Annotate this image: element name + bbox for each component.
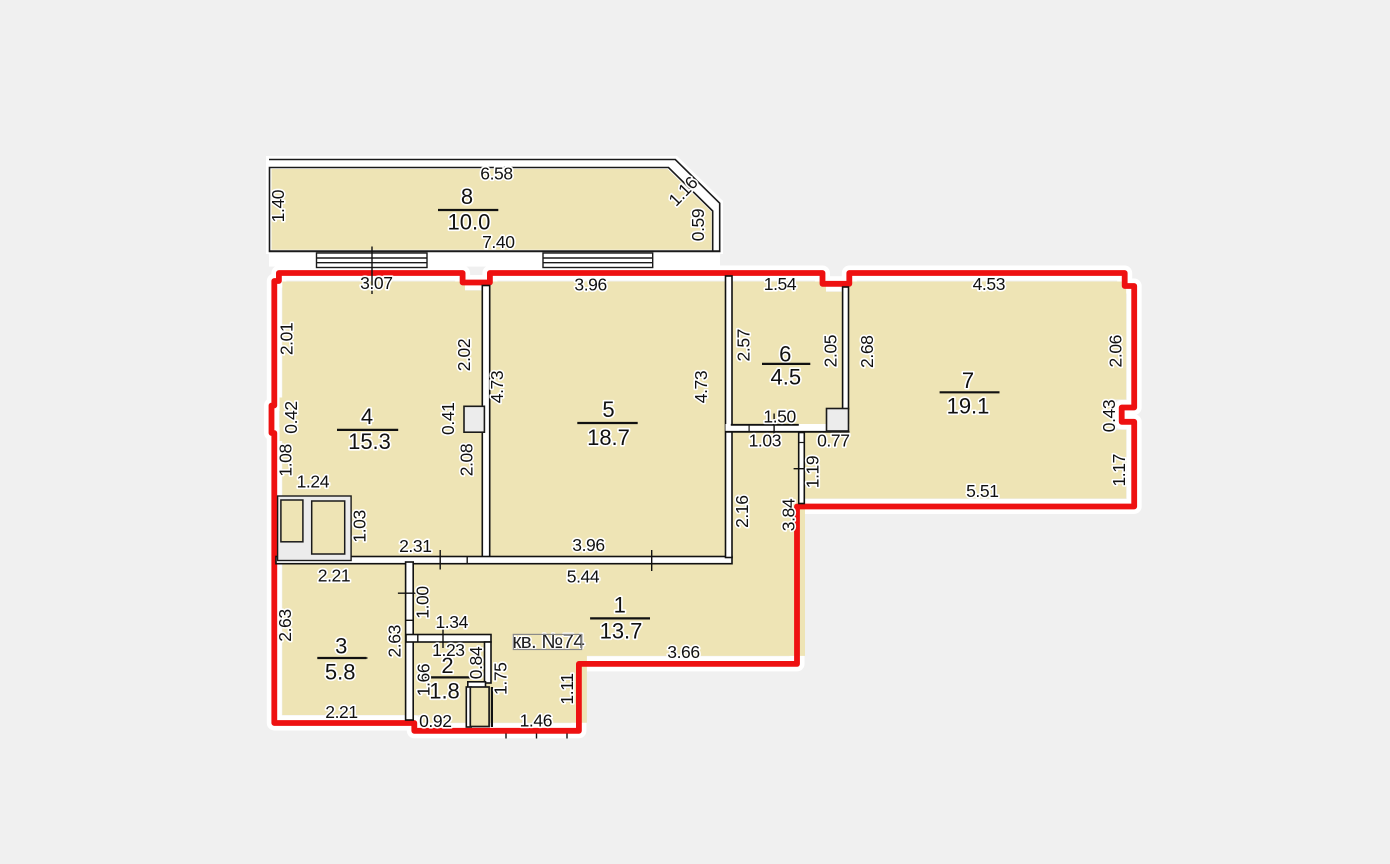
svg-text:5.44: 5.44 xyxy=(567,566,600,586)
svg-text:1.11: 1.11 xyxy=(557,673,577,704)
svg-text:1.19: 1.19 xyxy=(803,456,823,488)
svg-text:1.24: 1.24 xyxy=(297,472,330,492)
svg-text:1.40: 1.40 xyxy=(268,189,288,222)
svg-text:2.57: 2.57 xyxy=(734,329,754,361)
svg-text:4.5: 4.5 xyxy=(771,364,802,389)
svg-text:1.66: 1.66 xyxy=(414,664,434,696)
svg-text:2.63: 2.63 xyxy=(385,625,405,657)
svg-text:2.05: 2.05 xyxy=(821,335,841,367)
svg-text:2.06: 2.06 xyxy=(1106,335,1126,367)
svg-text:0.41: 0.41 xyxy=(438,402,458,434)
svg-text:0.84: 0.84 xyxy=(466,646,486,679)
svg-text:18.7: 18.7 xyxy=(587,425,630,450)
svg-text:1: 1 xyxy=(614,592,626,617)
svg-text:1.23: 1.23 xyxy=(432,640,464,660)
svg-text:0.92: 0.92 xyxy=(419,711,451,731)
svg-text:4: 4 xyxy=(361,404,373,429)
svg-text:2.08: 2.08 xyxy=(457,444,477,476)
svg-text:6.58: 6.58 xyxy=(480,164,512,184)
svg-text:1.50: 1.50 xyxy=(763,407,796,427)
svg-text:0.59: 0.59 xyxy=(688,209,708,241)
svg-text:4.73: 4.73 xyxy=(691,371,711,403)
svg-text:1.34: 1.34 xyxy=(435,612,468,632)
svg-text:2.21: 2.21 xyxy=(318,566,350,586)
svg-text:10.0: 10.0 xyxy=(447,209,490,234)
svg-text:7: 7 xyxy=(962,368,974,393)
svg-text:13.7: 13.7 xyxy=(600,618,643,643)
svg-text:1.8: 1.8 xyxy=(429,679,460,704)
svg-text:0.77: 0.77 xyxy=(817,431,849,451)
svg-text:2.68: 2.68 xyxy=(857,335,877,367)
svg-text:5.51: 5.51 xyxy=(966,481,998,501)
svg-text:19.1: 19.1 xyxy=(947,394,990,419)
svg-text:2.02: 2.02 xyxy=(454,339,474,371)
svg-text:2.01: 2.01 xyxy=(277,323,297,355)
svg-text:4.73: 4.73 xyxy=(487,371,507,403)
svg-text:1.00: 1.00 xyxy=(413,586,433,619)
svg-text:1.03: 1.03 xyxy=(349,510,369,542)
svg-text:15.3: 15.3 xyxy=(348,429,391,454)
svg-text:3.07: 3.07 xyxy=(360,273,392,293)
svg-text:0.43: 0.43 xyxy=(1099,400,1119,432)
svg-text:4.53: 4.53 xyxy=(973,274,1005,294)
svg-text:3.66: 3.66 xyxy=(667,642,699,662)
svg-text:5: 5 xyxy=(602,397,614,422)
svg-text:0.42: 0.42 xyxy=(281,401,301,433)
svg-text:7.40: 7.40 xyxy=(482,232,515,252)
svg-text:1.17: 1.17 xyxy=(1109,454,1129,486)
svg-text:2.63: 2.63 xyxy=(275,609,295,641)
svg-text:5.8: 5.8 xyxy=(325,660,356,685)
svg-text:1.54: 1.54 xyxy=(764,274,797,294)
svg-text:3: 3 xyxy=(335,633,347,658)
svg-text:1.08: 1.08 xyxy=(276,444,296,476)
svg-text:1.03: 1.03 xyxy=(749,431,781,451)
svg-text:1.75: 1.75 xyxy=(490,662,510,694)
svg-text:6: 6 xyxy=(779,341,791,366)
svg-text:8: 8 xyxy=(461,184,473,209)
svg-text:3.96: 3.96 xyxy=(572,535,604,555)
svg-text:2.21: 2.21 xyxy=(325,702,357,722)
svg-text:1.46: 1.46 xyxy=(520,710,552,730)
svg-text:2.31: 2.31 xyxy=(399,536,431,556)
svg-text:2.16: 2.16 xyxy=(732,495,752,527)
svg-text:3.96: 3.96 xyxy=(574,275,606,295)
svg-text:3.84: 3.84 xyxy=(779,498,799,531)
